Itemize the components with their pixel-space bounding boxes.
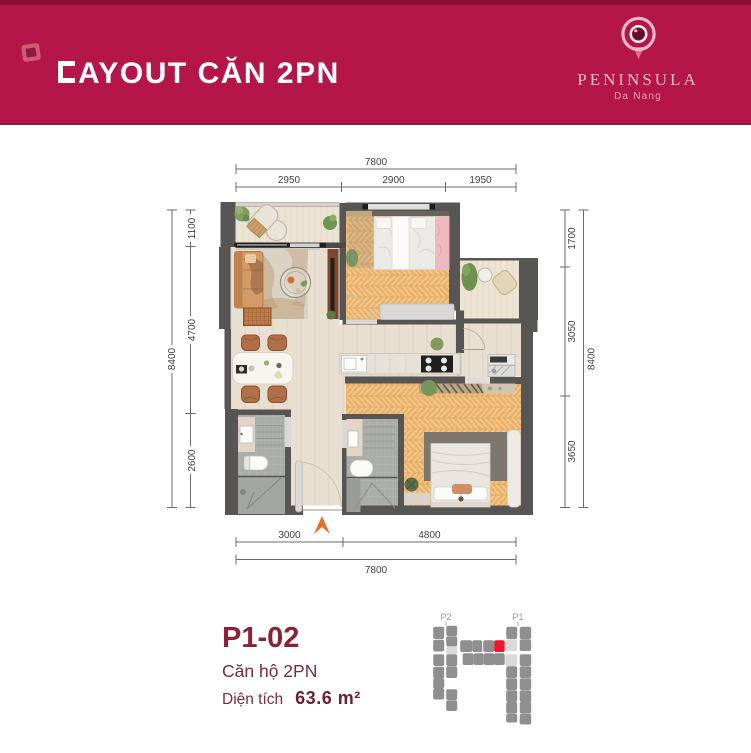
svg-text:4700: 4700 [187, 318, 198, 341]
svg-text:2600: 2600 [187, 449, 198, 472]
svg-text:8400: 8400 [167, 347, 178, 370]
svg-text:3050: 3050 [567, 320, 578, 343]
svg-text:1700: 1700 [567, 227, 578, 250]
svg-text:P2: P2 [440, 612, 451, 622]
svg-text:1950: 1950 [469, 175, 492, 186]
svg-text:2900: 2900 [382, 175, 405, 186]
svg-text:7800: 7800 [365, 565, 388, 576]
svg-text:2950: 2950 [278, 175, 301, 186]
svg-text:1100: 1100 [187, 217, 198, 239]
svg-text:P1: P1 [512, 612, 523, 622]
svg-text:3650: 3650 [567, 440, 578, 463]
svg-text:4800: 4800 [418, 530, 441, 541]
svg-text:8400: 8400 [587, 347, 598, 370]
svg-text:7800: 7800 [365, 157, 388, 168]
svg-text:3000: 3000 [278, 530, 301, 541]
